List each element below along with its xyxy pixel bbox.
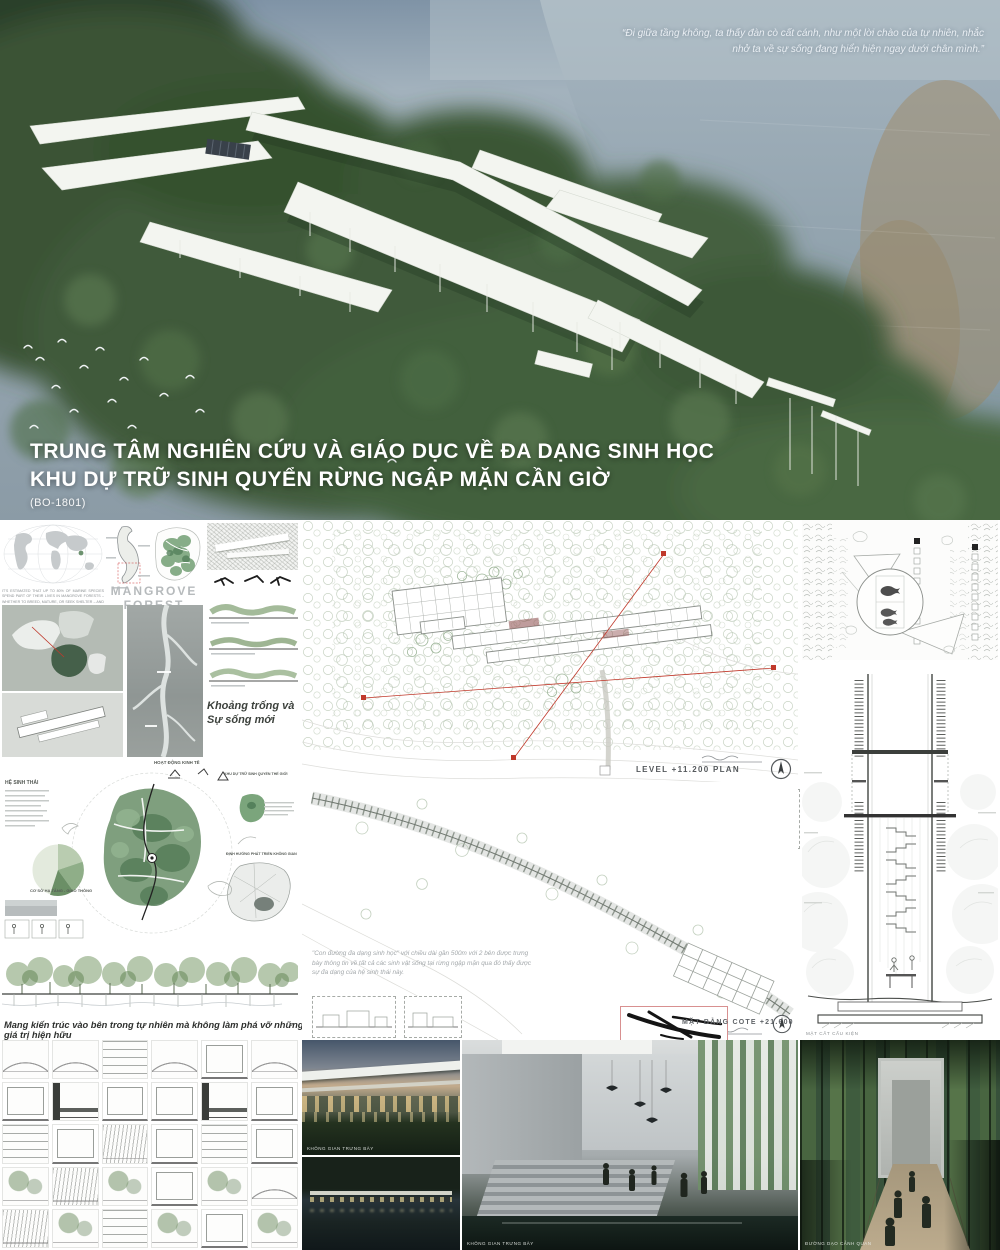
he-sinh-thai-label: HỆ SINH THÁI	[5, 780, 38, 786]
project-title-block: TRUNG TÂM NGHIÊN CỨU VÀ GIÁO DỤC VỀ ĐA D…	[30, 438, 714, 509]
hoat-dong-label: HOẠT ĐỘNG KINH TẾ	[154, 760, 200, 765]
project-title-line2: KHU DỰ TRỮ SINH QUYỂN RỪNG NGẬP MẶN CẦN …	[30, 466, 714, 494]
sketch-cell	[102, 1124, 149, 1163]
hero-quote: “Đi giữa tầng không, ta thấy đàn cò cất …	[564, 26, 984, 58]
khoang-line2: Sự sống mới	[207, 713, 302, 727]
satellite-map-panel	[127, 605, 203, 757]
world-map	[2, 523, 104, 585]
sketch-cell	[201, 1124, 248, 1163]
elevation-box-1	[312, 996, 396, 1038]
render-dusk-exterior: KHÔNG GIAN TRƯNG BÀY	[302, 1040, 460, 1155]
north-arrow-icon	[770, 758, 792, 780]
level-plan-label: LEVEL +11.200 PLAN	[636, 765, 740, 774]
khoang-line1: Khoảng trống và	[207, 699, 302, 713]
architecture-caption: Mang kiến trúc vào bên trong tự nhiên mà…	[4, 1020, 304, 1040]
sketch-cell	[2, 1124, 49, 1163]
sketch-cell	[52, 1040, 99, 1079]
sketch-cell	[52, 1124, 99, 1163]
sketch-cell	[151, 1124, 198, 1163]
biodiversity-path-paragraph: "Con đường đa dạng sinh học" với chiều d…	[312, 949, 534, 978]
sketch-cell	[151, 1082, 198, 1121]
cangio-green-map	[152, 523, 204, 585]
render-interior-exhibition: KHÔNG GIAN TRƯNG BÀY	[462, 1040, 798, 1250]
sketch-cell	[251, 1209, 298, 1248]
site-plan-panel: 01. LOBBY02. EXHIBITION HALL / GALLERY03…	[302, 520, 798, 782]
dinh-huong-label: ĐỊNH HƯỚNG PHÁT TRIỂN KHÔNG GIAN	[226, 852, 298, 856]
sketch-cell	[251, 1082, 298, 1121]
render-night-water	[302, 1157, 460, 1250]
concept-sketch-panel	[207, 523, 298, 570]
sketch-cell	[251, 1124, 298, 1163]
path-detail-plan-panel	[802, 520, 998, 660]
section-strips-panel	[207, 600, 300, 694]
cangio-map-panel	[152, 523, 204, 585]
ha-tang-label: CƠ SỞ HẠ TẦNG - GIAO THÔNG	[30, 888, 92, 893]
khu-du-tru-label: KHU DỰ TRỮ SINH QUYỂN THẾ GIỚI	[224, 772, 296, 776]
sketch-cell	[2, 1040, 49, 1079]
world-map-panel	[2, 523, 104, 585]
presentation-board: “Đi giữa tầng không, ta thấy đàn cò cất …	[0, 0, 1000, 1250]
quote-line-1: “Đi giữa tầng không, ta thấy đàn cò cất …	[564, 26, 984, 42]
sketch-cell	[201, 1040, 248, 1079]
sketch-cell	[2, 1209, 49, 1248]
bird-mobile-sculpture	[582, 1060, 702, 1150]
render-boardwalk-photo: ĐƯỜNG DẠO CẢNH QUAN	[800, 1040, 1000, 1250]
khoang-trong-caption: Khoảng trống và Sự sống mới	[207, 699, 302, 728]
tower-section-panel	[802, 662, 998, 1034]
render-label: KHÔNG GIAN TRƯNG BÀY	[307, 1146, 374, 1151]
vietnam-marker	[79, 551, 84, 556]
hero-aerial-render: “Đi giữa tầng không, ta thấy đàn cò cất …	[0, 0, 1000, 520]
sketch-cell	[151, 1040, 198, 1079]
long-green-section-panel	[2, 946, 298, 1014]
quote-line-2: nhở ta về sự sống đang hiển hiện ngay dư…	[564, 42, 984, 58]
elevation-box-2	[404, 996, 462, 1038]
sketch-cell	[52, 1209, 99, 1248]
sketch-cell	[201, 1209, 248, 1248]
bird-sketches-strip	[207, 572, 298, 587]
sketch-cell	[52, 1082, 99, 1121]
sketch-cell	[52, 1167, 99, 1206]
sketch-cell	[251, 1040, 298, 1079]
sketch-cell	[102, 1167, 149, 1206]
sketch-cell	[102, 1082, 149, 1121]
render-label: KHÔNG GIAN TRƯNG BÀY	[467, 1241, 534, 1246]
project-title-line1: TRUNG TÂM NGHIÊN CỨU VÀ GIÁO DỤC VỀ ĐA D…	[30, 438, 714, 466]
sketch-cell	[151, 1209, 198, 1248]
locator-map-panel	[2, 605, 123, 691]
sketch-cell	[251, 1167, 298, 1206]
sketch-cell	[201, 1167, 248, 1206]
north-arrow-icon	[772, 1014, 792, 1034]
sketch-cell	[151, 1167, 198, 1206]
people-silhouettes	[592, 1158, 722, 1218]
tower-section-label: MẶT CẮT CẤU KIỆN	[806, 1031, 859, 1036]
project-code: (BO-1801)	[30, 497, 714, 509]
building-plan-thumb	[2, 693, 123, 757]
section-sketch-grid	[2, 1040, 298, 1248]
sketch-cell	[102, 1040, 149, 1079]
sketch-cell	[201, 1082, 248, 1121]
sketch-cell	[2, 1082, 49, 1121]
sketch-cell	[2, 1167, 49, 1206]
cangio-analysis-map-panel: HỆ SINH THÁI HOẠT ĐỘNG KINH TẾ KHU DỰ TR…	[2, 758, 298, 944]
sketch-cell	[102, 1209, 149, 1248]
render-label: ĐƯỜNG DẠO CẢNH QUAN	[805, 1241, 871, 1246]
